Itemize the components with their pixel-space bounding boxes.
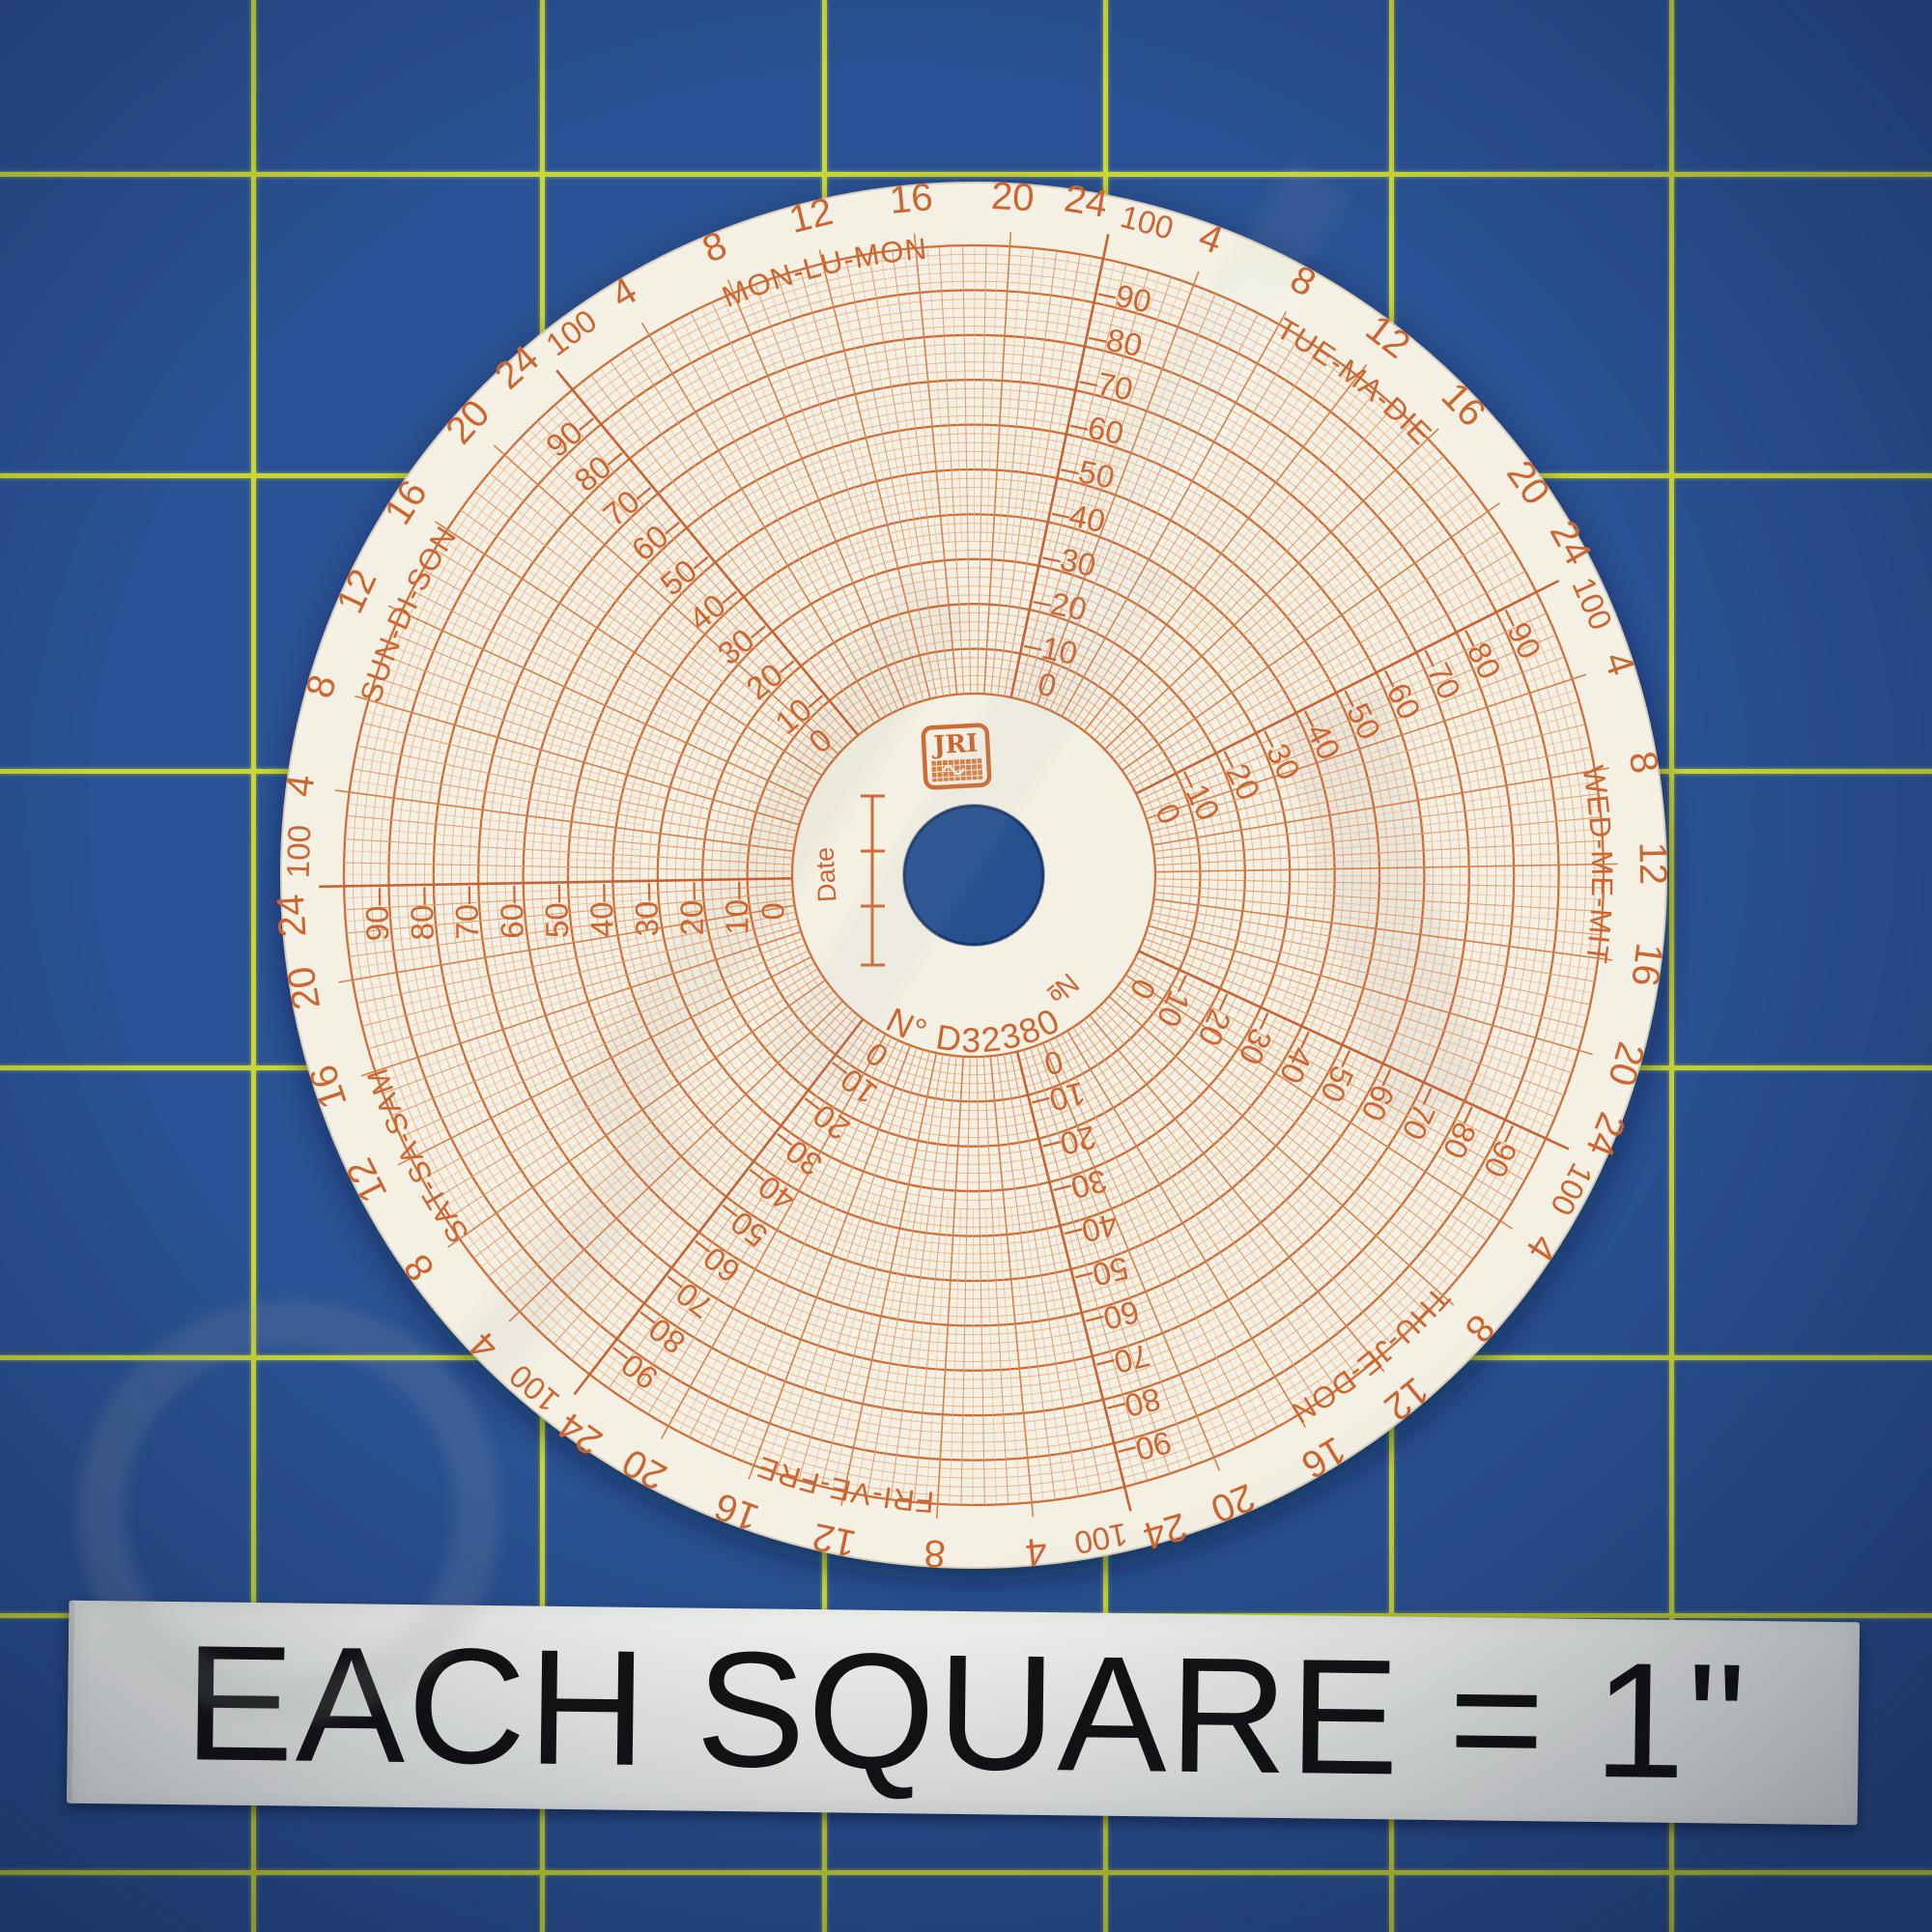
rim-hour24-label: 24 [1062, 177, 1111, 226]
logo-text: JRI [931, 729, 980, 760]
scale-number: 10– [719, 881, 755, 935]
rim-scale100-label: 100 [279, 824, 317, 878]
scale-number: 20– [673, 882, 710, 936]
scale-number: 70– [448, 886, 485, 940]
rim-hour-label: 20 [990, 175, 1036, 219]
date-label: Date [810, 846, 842, 903]
photo-canvas: 4812162024100481216202410048121620241004… [0, 0, 1932, 1932]
scale-number: 30– [628, 882, 665, 936]
rim-hour-label: 12 [1632, 841, 1675, 885]
ruler-label: EACH SQUARE = 1" [67, 1601, 1860, 1826]
ruler-label-text: EACH SQUARE = 1" [184, 1608, 1748, 1817]
rim-hour-label: 16 [888, 176, 934, 222]
rim-hour-label: 16 [1623, 941, 1670, 989]
rim-hour-label: 12 [809, 1515, 860, 1565]
rim-hour-label: 4 [1024, 1529, 1049, 1574]
scale-number: 60– [494, 885, 530, 939]
scale-number: 90– [358, 887, 395, 941]
rim-hour-label: 8 [923, 1531, 947, 1575]
scale-number: 80– [404, 886, 440, 940]
rim-hour-label: 20 [279, 963, 328, 1012]
scale-number: 50– [538, 884, 575, 938]
scale-zero: 0 [754, 902, 790, 921]
rim-hour24-label: 24 [270, 893, 315, 938]
scale-number: 40– [583, 883, 620, 937]
